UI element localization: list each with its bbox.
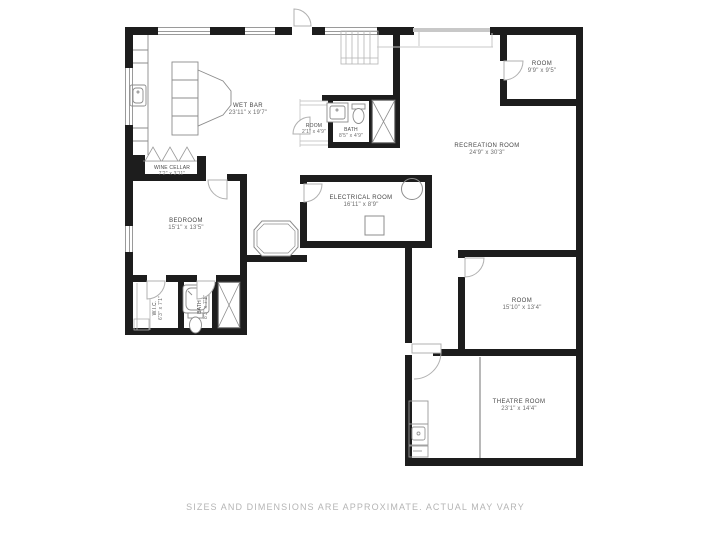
fixtures-overlay: [0, 0, 711, 533]
toilet-bowl: [190, 317, 202, 333]
upper-floor-outline: [377, 30, 493, 47]
stairs: [341, 31, 378, 64]
room-dims: 9'9" x 9'5": [528, 68, 556, 75]
room-label-closet: ROOM 2'1" x 4'9": [302, 123, 326, 135]
room-name: WET BAR: [229, 103, 268, 110]
disclaimer-text: SIZES AND DIMENSIONS ARE APPROXIMATE. AC…: [186, 502, 525, 512]
wine-racks: [143, 147, 197, 161]
room-dims: 23'1" x 14'4": [493, 406, 546, 413]
room-label-electrical: ELECTRICAL ROOM 16'11" x 8'9": [329, 195, 392, 209]
room-dims: 15'1" x 13'5": [168, 225, 204, 232]
room-top-right-door: [504, 61, 523, 80]
room-dims: 2'1" x 4'9": [302, 129, 326, 135]
room-dims: 7'2" x 3'11": [154, 171, 190, 177]
room-name: THEATRE ROOM: [493, 399, 546, 406]
room-dims: 15'10" x 13'4": [502, 305, 541, 312]
room-name: BEDROOM: [168, 218, 204, 225]
bath-upper-fixtures: [327, 103, 365, 124]
room-dims: 23'11" x 19'7": [229, 110, 268, 117]
electrical-door: [304, 184, 322, 202]
theatre-door-arc: [414, 353, 441, 379]
room-dims: 24'9" x 30'3": [454, 150, 519, 157]
room-dims: 8'5" x 4'9": [339, 133, 363, 139]
wet-bar-counter: [130, 35, 148, 155]
shower-lower: [218, 282, 240, 328]
theatre-door-leaf: [412, 344, 441, 353]
room-label-wet-bar: WET BAR 23'11" x 19'7": [229, 103, 268, 117]
room-label-theatre: THEATRE ROOM 23'1" x 14'4": [493, 399, 546, 413]
room-mid-door: [465, 258, 484, 277]
room-dims: 6'3" x 7'1": [158, 296, 164, 320]
room-label-bedroom: BEDROOM 15'1" x 13'5": [168, 218, 204, 232]
room-label-room-mid-right: ROOM 15'10" x 13'4": [502, 298, 541, 312]
room-name: ROOM: [528, 61, 556, 68]
room-name: RECREATION ROOM: [454, 143, 519, 150]
sump-pit: [402, 179, 423, 200]
bedroom-door: [208, 180, 227, 199]
toilet-bowl: [353, 109, 364, 124]
entry-door: [294, 9, 311, 26]
shower-upper: [372, 100, 395, 143]
bar-counter: [198, 70, 231, 126]
door-swings: [147, 9, 523, 379]
floor-drain: [365, 216, 384, 235]
room-label-bath-lower: BATH 8'3" x 7'1": [197, 295, 209, 319]
utility-box: [409, 446, 428, 457]
wet-bar-island: [172, 62, 231, 135]
room-dims: 16'11" x 8'9": [329, 202, 392, 209]
room-label-bath-upper: BATH 8'5" x 4'9": [339, 127, 363, 139]
room-name: ROOM: [502, 298, 541, 305]
room-label-wine-cellar: WINE CELLAR 7'2" x 3'11": [154, 165, 190, 177]
spa-octagon: [254, 221, 298, 256]
room-label-wic: W.I.C. 6'3" x 7'1": [152, 296, 164, 320]
stair-treads: [341, 31, 378, 64]
room-label-room-top-right: ROOM 9'9" x 9'5": [528, 61, 556, 75]
floor-plan: WET BAR 23'11" x 19'7" ROOM 2'1" x 4'9" …: [0, 0, 711, 533]
room-label-recreation: RECREATION ROOM 24'9" x 30'3": [454, 143, 519, 157]
room-dims: 8'3" x 7'1": [203, 295, 209, 319]
theatre-utility-fixtures: [409, 357, 480, 458]
room-name: ELECTRICAL ROOM: [329, 195, 392, 202]
